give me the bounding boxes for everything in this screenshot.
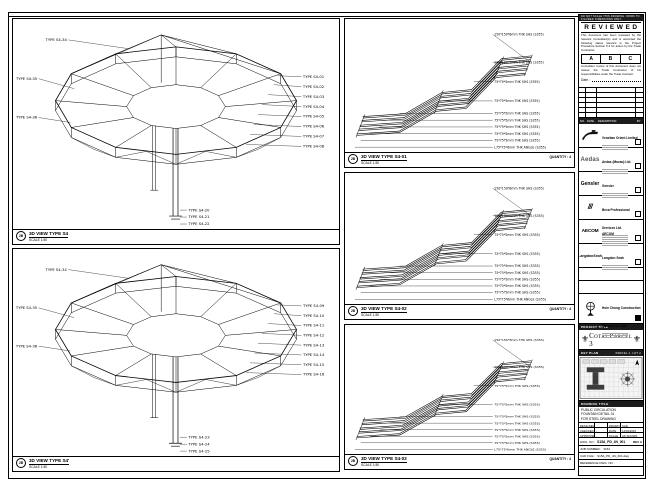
col-date: DATE <box>586 120 597 123</box>
quantity-note: QUANTITY : 4 <box>549 154 571 159</box>
annotation-label: 75*75*5mm THK SHS (S355) <box>494 284 540 288</box>
leader-line <box>278 305 302 306</box>
col-no: NO. <box>579 120 586 123</box>
quantity-note: QUANTITY : 4 <box>549 456 571 461</box>
annotation-label: 150*150*8mm THK SHS (S355) <box>494 33 544 37</box>
annotation-label: L75*75*6mm THK ANGLE (S355) <box>494 145 546 149</box>
annotation-group: 150*150*8mm THK SHS (S355)100*100*5mm TH… <box>355 338 546 451</box>
leader-line <box>250 134 301 136</box>
status-checkbox <box>635 235 641 241</box>
status-option-c: C <box>621 55 640 63</box>
consultant-block-venetian: Venetian Orient Limited <box>579 124 643 148</box>
panel-footer: 2B 3D VIEW TYPE S4'SCALE 1:50 <box>13 456 339 471</box>
revision-table <box>579 88 643 118</box>
annotation-label: TYPE S4-09 <box>302 304 325 308</box>
view-scale: SCALE 1:50 <box>361 313 407 318</box>
view-scale: SCALE 1:50 <box>29 238 68 243</box>
annotation-label: 75*75*5mm THK SHS (S355) <box>494 118 540 122</box>
status-checkbox <box>635 211 641 217</box>
annotation-group: 150*150*8mm THK SHS (S355)100*100*5mm TH… <box>355 33 546 150</box>
annotation-label: 75*75*5mm THK SHS (S355) <box>494 125 540 129</box>
annotation-label: TYPE S4-36 <box>15 116 38 120</box>
consultant-block-gensler: Gensler Gensler <box>579 172 643 196</box>
title-block-filler <box>579 467 643 475</box>
consultant-address <box>602 265 642 270</box>
leader-line <box>268 95 302 97</box>
annotation-label: 75*75*5mm THK SHS (S355) <box>494 291 540 295</box>
quantity-note: QUANTITY : 4 <box>549 306 571 311</box>
status-checkbox-filled <box>635 315 641 321</box>
annotation-group: TYPE S4-23TYPE S4-24TYPE S4-25 <box>180 436 210 454</box>
detail-bubble: 2B <box>16 231 26 241</box>
reference-dwg-row: REFERENCE DWG. NO : <box>579 460 643 467</box>
annotation-label: TYPE S4-21 <box>187 215 210 219</box>
consultant-name: Gensler <box>602 184 614 188</box>
annotation-label: 75*75*5mm THK SHS (S355) <box>494 403 540 407</box>
view-panel-s4-02: 150*150*8mm THK SHS (S355)100*100*5mm TH… <box>344 172 575 320</box>
leader-line <box>39 79 75 89</box>
leader-line <box>262 105 302 107</box>
date-label: Date : <box>581 78 590 82</box>
drawing-title-text: PUBLIC CIRCULATION FOUNTAIN DETAIL 31 FO… <box>579 407 643 423</box>
annotation-label: 75*75*5mm THK SHS (S355) <box>494 441 540 445</box>
annotation-label: 100*100*5mm THK SHS (S355) <box>494 214 544 218</box>
annotation-label: 75*75*5mm THK SHS (S355) <box>494 415 540 419</box>
date-fill-line <box>592 78 641 82</box>
leader-line <box>246 373 301 375</box>
view-title: 3D VIEW TYPE S4' <box>29 458 69 465</box>
leader-line <box>268 324 302 326</box>
panel-footer: 2B 3D VIEW TYPE S4-02SCALE 1:50 QUANTITY… <box>345 304 574 319</box>
title-block: DO NOT SCALE THIS DRAWING. WORK TO FIGUR… <box>578 14 644 476</box>
consultant-block-beca: /// Beca Professional Services Ltd. <box>579 196 643 220</box>
annotation-label: TYPE S4-15 <box>302 363 325 367</box>
annotation-label: TYPE S4-13 <box>302 343 325 347</box>
annotation-label: TYPE S4-05 <box>302 115 325 119</box>
annotation-label: TYPE S4-11 <box>302 324 325 328</box>
annotation-label: 75*75*5mm THK SHS (S355) <box>494 264 540 268</box>
tube-assembly-drawing: 150*150*8mm THK SHS (S355)100*100*5mm TH… <box>345 325 574 454</box>
drawing-sheet: TYPE S4-34 TYPE S4-35TYPE S4-36 TYPE S4-… <box>0 0 650 488</box>
fountain-circle <box>620 371 636 387</box>
annotation-label: TYPE S4-16 <box>302 373 325 377</box>
stamp-note-2: Consultant review of this document does … <box>581 65 641 76</box>
view-panel-s4-01: 150*150*8mm THK SHS (S355)100*100*5mm TH… <box>344 18 575 168</box>
consultant-block-langdon-seah: LangdonSeah Langdon Seah <box>579 244 643 268</box>
view-scale: SCALE 1:50 <box>361 161 407 166</box>
sheet-border-inner-line <box>8 16 644 17</box>
status-options: A B C <box>581 54 641 64</box>
detail-bubble: 2B <box>16 458 26 468</box>
annotation-label: TYPE S4-10 <box>302 314 325 318</box>
consultant-name: AECOM <box>602 232 614 236</box>
consultant-name: Aedas (Macau) Ltd. <box>602 160 631 164</box>
info-grid: DESIGNED DRAWN CAD CHECKED - DATE 14/03/… <box>579 423 643 438</box>
panel-footer: 2B 3D VIEW TYPE S4-03SCALE 1:50 QUANTITY… <box>345 454 574 469</box>
annotation-label: TYPE S4-24 <box>187 442 210 446</box>
fleur-ornament-icon: ⚜ <box>581 335 589 344</box>
aecom-logo: AECOM <box>580 222 600 242</box>
annotation-label: TYPE S4-34 <box>45 268 68 272</box>
annotation-label: TYPE S4-03 <box>302 95 325 99</box>
status-checkbox <box>635 187 641 193</box>
annotation-label: TYPE S4-02 <box>302 85 325 89</box>
cad-file-value: S15A_PD_4N_001.dwg <box>597 454 629 458</box>
cad-file-row: CAD FILE : S15A_PD_4N_001.dwg <box>579 453 643 460</box>
stamp-date-line: Date : <box>581 78 641 82</box>
consultant-block-aecom: AECOM AECOM <box>579 220 643 244</box>
detail-bubble: 2B <box>348 154 358 164</box>
annotation-label: 75*75*5mm THK SHS (S355) <box>494 428 540 432</box>
view-title: 3D VIEW TYPE S4-03 <box>361 456 407 463</box>
annotation-label: 75*75*5mm THK SHS (S355) <box>494 384 540 388</box>
view-title: 3D VIEW TYPE S4-02 <box>361 306 407 313</box>
key-plan-label: KEY PLAN <box>581 351 599 355</box>
annotation-label: 75*75*5mm THK SHS (S355) <box>494 421 540 425</box>
reference-dwg-label: REFERENCE DWG. NO : <box>580 461 615 465</box>
annotation-label: TYPE S4-14 <box>302 353 325 357</box>
annotation-label: 150*150*8mm THK SHS (S355) <box>494 338 544 342</box>
contractor-logo <box>580 296 600 322</box>
annotation-label: 75*75*5mm THK SHS (S355) <box>494 112 540 116</box>
annotation-label: TYPE S4-36 <box>15 344 38 348</box>
drawing-title-label: DRAWING TITLE <box>581 402 609 406</box>
annotation-label: TYPE S4-25 <box>187 449 210 453</box>
consultant-name: Langdon Seah <box>602 256 624 260</box>
annotation-label: TYPE S4-22 <box>187 222 210 226</box>
job-number-value: 3152 <box>603 447 610 451</box>
annotation-label: TYPE S4-06 <box>302 125 325 129</box>
tube-assembly-drawing: 150*150*8mm THK SHS (S355)100*100*5mm TH… <box>345 19 574 152</box>
beca-logo: /// <box>580 198 600 218</box>
view-title: 3D VIEW TYPE S4 <box>29 231 68 238</box>
annotation-label: 150*150*8mm THK SHS (S355) <box>494 186 544 190</box>
annotation-label: TYPE S4-23 <box>187 436 210 440</box>
annotation-label: L75*75*6mm THK ANGLE (S355) <box>494 297 546 301</box>
contractor-block: Hsin Chong Construction (Macau) Co. Ltd. <box>579 294 643 324</box>
leader-line <box>258 343 301 345</box>
panel-footer: 2B 3D VIEW TYPE S4SCALE 1:50 <box>13 229 339 244</box>
annotation-label: L75*75*6mm THK ANGLE (S355) <box>494 448 546 452</box>
consultant-block-aedas: Aedas Aedas (Macau) Ltd. <box>579 148 643 172</box>
empty-consultant-block <box>579 281 643 294</box>
annotation-label: TYPE S4-20 <box>187 208 210 212</box>
review-stamp: REVIEWED This document has been reviewed… <box>579 21 643 88</box>
annotation-label: 75*75*5mm THK SHS (S355) <box>494 139 540 143</box>
annotation-label: TYPE S4-35 <box>15 306 38 310</box>
leader-line <box>39 308 75 318</box>
revision-value: REV A <box>633 440 642 444</box>
col-description: DESCRIPTION <box>597 120 636 123</box>
dwg-no-label: DWG. NO : <box>580 440 595 444</box>
view-panel-s4-03: 150*150*8mm THK SHS (S355)100*100*5mm TH… <box>344 324 575 470</box>
view-panel-s4: TYPE S4-34 TYPE S4-35TYPE S4-36 TYPE S4-… <box>12 18 340 245</box>
contractor-address <box>602 333 642 338</box>
reviewed-title: REVIEWED <box>581 22 641 33</box>
annotation-label: TYPE S4-07 <box>302 135 325 139</box>
detail-bubble: 2B <box>348 306 358 316</box>
view-scale: SCALE 1:50 <box>29 465 69 470</box>
empty-consultant-block <box>579 268 643 281</box>
annotation-label: 100*100*5mm THK SHS (S355) <box>494 365 544 369</box>
key-plan-map <box>579 356 643 401</box>
annotation-label: 75*75*5mm THK SHS (S355) <box>494 80 540 84</box>
leader-line <box>250 363 301 365</box>
leader-line <box>493 34 530 61</box>
status-option-b: B <box>601 55 620 63</box>
annotation-label: TYPE S4-04 <box>302 105 325 109</box>
leader-line <box>254 353 301 355</box>
venetian-sands-logo <box>580 126 600 146</box>
leader-line <box>262 333 302 335</box>
annotation-label: TYPE S4-34 <box>45 38 68 42</box>
aedas-logo: Aedas <box>580 150 600 170</box>
annotation-label: 75*75*5mm THK SHS (S355) <box>494 233 540 237</box>
view-title: 3D VIEW TYPE S4-01 <box>361 154 407 161</box>
annotation-label: TYPE S4-12 <box>302 334 324 338</box>
col-by: BY <box>636 120 643 123</box>
annotation-label: TYPE S4-35 <box>15 77 38 81</box>
stamp-note-1: This document has been reviewed by the r… <box>581 34 641 52</box>
panel-footer: 2B 3D VIEW TYPE S4-01SCALE 1:50 QUANTITY… <box>345 152 574 167</box>
annotation-label: 75*75*5mm THK SHS (S355) <box>494 99 540 103</box>
detail-bubble: 2B <box>348 456 358 466</box>
job-number-row: JOB NUMBER : 3152 <box>579 446 643 453</box>
leader-line <box>493 188 530 215</box>
consultant-name: Venetian Orient Limited <box>602 136 638 140</box>
dwg-no-row: DWG. NO : S15A_PD_4N_001 REV A <box>579 438 643 446</box>
key-plan-parcel-label: PARCEL 1, LOT 2 <box>616 352 641 355</box>
annotation-label: 75*75*5mm THK SHS (S355) <box>494 434 540 438</box>
cad-file-label: CAD FILE : <box>580 454 595 458</box>
annotation-label: 75*75*5mm THK SHS (S355) <box>494 252 540 256</box>
job-number-label: JOB NUMBER : <box>580 447 601 451</box>
annotation-label: TYPE S4-08 <box>302 145 325 149</box>
status-checkbox <box>635 139 641 145</box>
annotation-group: TYPE S4-34 <box>45 268 130 279</box>
leader-line <box>278 76 302 77</box>
annotation-label: TYPE S4-01 <box>302 75 325 79</box>
status-checkbox <box>635 259 641 265</box>
dwg-no-value: S15A_PD_4N_001 <box>597 440 625 444</box>
view-scale: SCALE 1:50 <box>361 463 407 468</box>
tube-assembly-drawing: 150*150*8mm THK SHS (S355)100*100*5mm TH… <box>345 173 574 304</box>
status-option-a: A <box>582 55 601 63</box>
view-panel-s4-prime: TYPE S4-34 TYPE S4-35TYPE S4-36 TYPE S4-… <box>12 248 340 472</box>
status-checkbox <box>635 163 641 169</box>
leader-line <box>68 270 129 279</box>
annotation-label: 75*75*5mm THK SHS (S355) <box>494 132 540 136</box>
leader-line <box>68 40 129 49</box>
annotation-group: 150*150*8mm THK SHS (S355)100*100*5mm TH… <box>355 186 546 301</box>
langdon-seah-logo: LangdonSeah <box>580 246 600 266</box>
key-plan-drawing <box>579 356 643 400</box>
annotation-label: 100*100*5mm THK SHS (S355) <box>494 61 544 65</box>
drawing-title-line-3: FOR STEEL DRAWING <box>581 417 641 421</box>
annotation-label: 75*75*5mm THK SHS (S355) <box>494 271 540 275</box>
leader-line <box>246 144 301 146</box>
annotation-group: TYPE S4-34 <box>45 38 130 49</box>
leader-line <box>493 340 530 366</box>
canopy-structure-drawing: TYPE S4-34 TYPE S4-35TYPE S4-36 TYPE S4-… <box>13 249 339 456</box>
leader-line <box>258 115 301 117</box>
annotation-group: TYPE S4-20TYPE S4-21TYPE S4-22 <box>180 208 210 226</box>
canopy-structure-drawing: TYPE S4-34 TYPE S4-35TYPE S4-36 TYPE S4-… <box>13 19 339 229</box>
leader-line <box>254 124 301 126</box>
gensler-logo: Gensler <box>580 174 600 194</box>
annotation-label: 75*75*5mm THK SHS (S355) <box>494 278 540 282</box>
